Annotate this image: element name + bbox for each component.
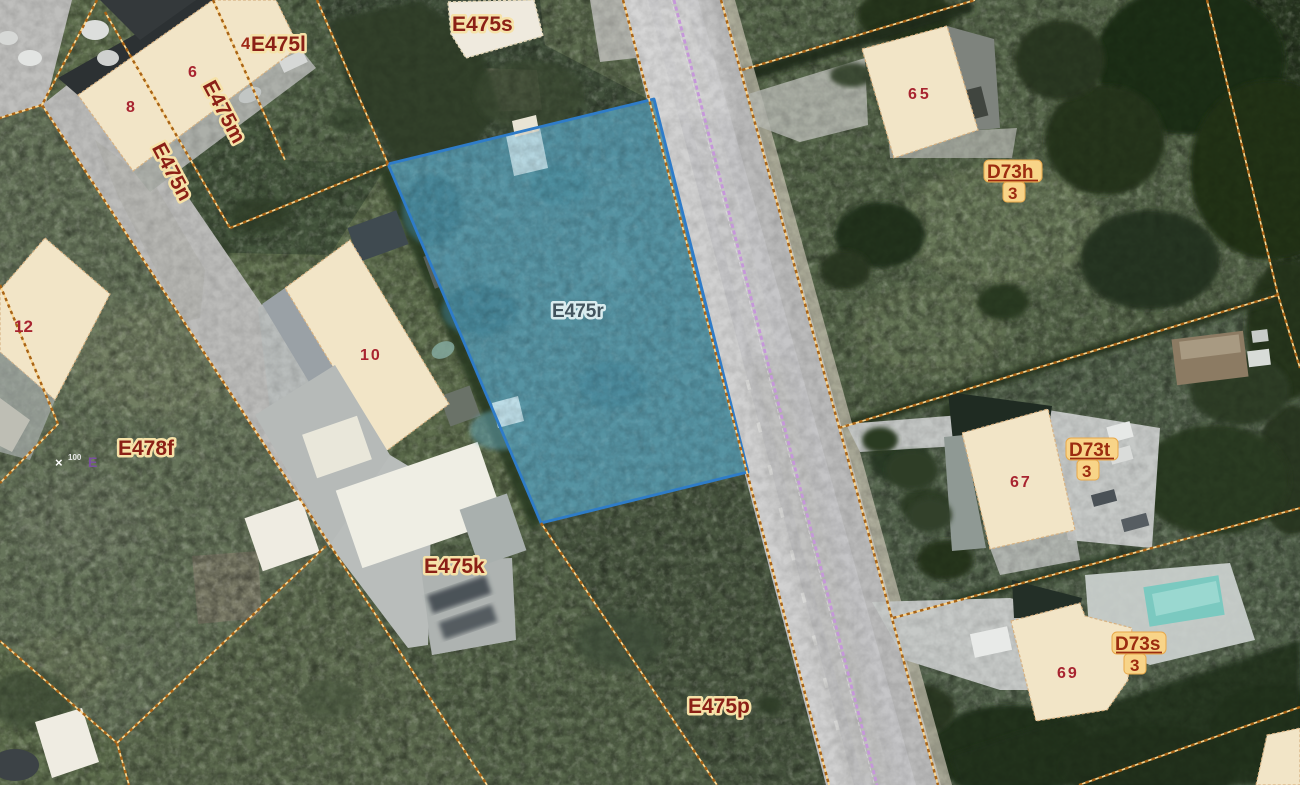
svg-text:3: 3: [1008, 184, 1017, 203]
svg-text:65: 65: [908, 86, 932, 103]
svg-text:E475k: E475k: [424, 555, 485, 578]
svg-text:3: 3: [1130, 656, 1139, 675]
svg-text:4: 4: [241, 34, 251, 53]
svg-text:6: 6: [188, 64, 197, 81]
svg-text:E478f: E478f: [118, 437, 175, 460]
svg-text:E475r: E475r: [552, 301, 604, 322]
svg-text:10: 10: [360, 347, 382, 364]
svg-text:×: ×: [55, 455, 63, 470]
svg-text:E475l: E475l: [251, 33, 306, 56]
svg-text:8: 8: [126, 99, 135, 116]
svg-text:3: 3: [1082, 462, 1091, 481]
svg-text:Ε: Ε: [88, 454, 97, 470]
svg-text:12: 12: [14, 317, 33, 336]
svg-text:E475s: E475s: [452, 13, 513, 36]
svg-text:69: 69: [1057, 665, 1079, 682]
svg-text:67: 67: [1010, 474, 1032, 491]
svg-text:E475p: E475p: [688, 695, 750, 718]
svg-text:100: 100: [68, 453, 82, 462]
